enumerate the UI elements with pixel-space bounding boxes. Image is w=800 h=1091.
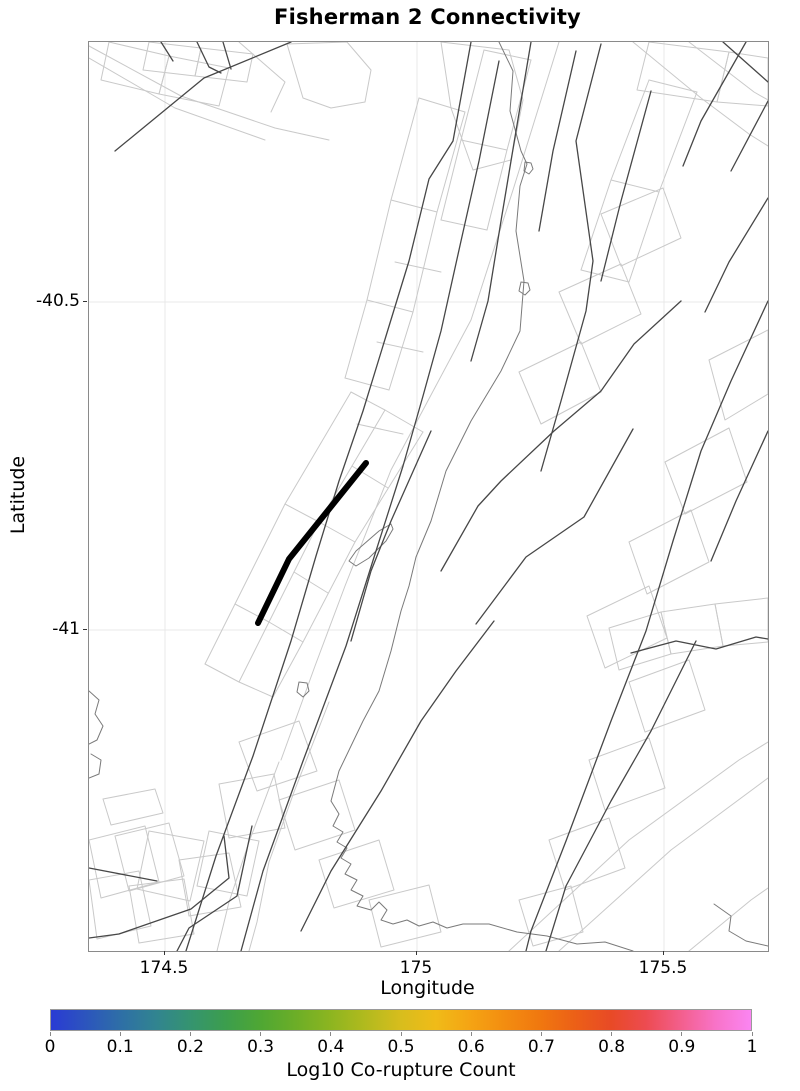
section-outline [629, 660, 705, 732]
x-tick-label: 174.5 [119, 958, 209, 978]
coastline [89, 691, 103, 744]
section-outline [587, 586, 667, 668]
fault-trace [471, 42, 531, 361]
colorbar-tick-label: 0.1 [90, 1037, 150, 1057]
x-tick-mark [164, 951, 165, 955]
section-outline [611, 180, 659, 192]
fault-trace [89, 868, 157, 881]
section-outline [89, 871, 151, 939]
colorbar-tick-label: 0.7 [511, 1037, 571, 1057]
plot-area [88, 41, 769, 952]
colorbar-tick-mark [471, 1032, 472, 1036]
section-outline [581, 270, 629, 282]
section-outline [285, 504, 319, 522]
x-tick-mark [416, 951, 417, 955]
colorbar-tick-mark [260, 1032, 261, 1036]
coastline [331, 42, 527, 801]
fault-trace [89, 836, 229, 938]
section-outline [179, 853, 241, 916]
section-outline [709, 330, 768, 420]
colorbar-tick-mark [541, 1032, 542, 1036]
section-outline [389, 112, 465, 390]
section-outline [319, 840, 394, 908]
fault-trace [301, 621, 494, 931]
section-outline [279, 780, 355, 850]
fault-trace [177, 826, 252, 951]
colorbar-tick-mark [752, 1032, 753, 1036]
colorbar-tick-mark [401, 1032, 402, 1036]
y-tick-mark [83, 629, 87, 630]
section-outline [345, 378, 389, 390]
colorbar-label: Log10 Co-rupture Count [50, 1059, 752, 1081]
coastline [519, 282, 530, 295]
y-tick-label: -41 [0, 619, 80, 639]
fault-trace [539, 51, 576, 231]
colorbar: 00.10.20.30.40.50.60.70.80.91 [50, 1009, 752, 1031]
fault-trace [705, 198, 768, 312]
section-outline [159, 56, 229, 106]
x-axis-label: Longitude [88, 977, 767, 999]
section-outline [581, 80, 649, 270]
coastline [714, 904, 768, 946]
section-outline [395, 262, 441, 272]
section-outline [89, 58, 265, 140]
fault-trace [115, 42, 291, 151]
fault-trace [223, 42, 231, 69]
colorbar-tick-label: 0.3 [231, 1037, 291, 1057]
fault-trace [541, 44, 601, 471]
section-outline [461, 140, 507, 150]
fault-trace [723, 42, 768, 82]
section-outline [101, 42, 169, 94]
colorbar-tick-mark [611, 1032, 612, 1036]
fault-trace [731, 101, 768, 171]
section-outline [357, 424, 403, 434]
fault-trace [241, 61, 499, 951]
section-outline [345, 98, 419, 378]
section-outline [239, 410, 385, 682]
colorbar-tick-mark [681, 1032, 682, 1036]
y-tick-mark [83, 301, 87, 302]
chart-title: Fisherman 2 Connectivity [88, 5, 767, 29]
colorbar-tick-mark [120, 1032, 121, 1036]
colorbar-tick-label: 0.8 [582, 1037, 642, 1057]
coastline [297, 682, 309, 697]
section-outline [239, 42, 285, 112]
colorbar-tick-label: 0 [20, 1037, 80, 1057]
section-outline [689, 888, 768, 951]
section-outline [205, 664, 239, 682]
y-axis-label: Latitude [7, 456, 29, 534]
colorbar-tick-label: 0.6 [441, 1037, 501, 1057]
colorbar-tick-mark [330, 1032, 331, 1036]
fault-trace [546, 641, 696, 951]
colorbar-tick-label: 0.4 [301, 1037, 361, 1057]
fault-map-canvas [89, 42, 768, 951]
section-outline [319, 522, 355, 542]
section-outline [633, 42, 768, 146]
colorbar-tick-label: 1 [722, 1037, 782, 1057]
fault-trace [476, 429, 633, 624]
section-outline [89, 826, 159, 898]
y-tick-label: -40.5 [0, 291, 80, 311]
coastline [89, 754, 101, 778]
colorbar-tick-label: 0.9 [652, 1037, 712, 1057]
section-outline [391, 200, 437, 212]
section-outline [281, 42, 559, 760]
colorbar-tick-mark [50, 1032, 51, 1036]
colorbar-tick-label: 0.2 [160, 1037, 220, 1057]
section-outline [269, 622, 303, 642]
section-outline [519, 342, 601, 424]
colorbar-tick-label: 0.5 [371, 1037, 431, 1057]
section-outline [661, 604, 723, 654]
section-outline [629, 510, 709, 594]
colorbar-tick-mark [190, 1032, 191, 1036]
section-outline [601, 188, 681, 266]
section-outline [239, 682, 273, 697]
section-outline [441, 50, 484, 220]
section-outline [649, 80, 697, 92]
section-outline [137, 831, 204, 901]
section-outline [509, 742, 768, 951]
highlighted-fault-fisherman-2 [258, 463, 366, 623]
section-outline [89, 46, 329, 140]
section-outline [103, 789, 163, 825]
x-tick-mark [663, 951, 664, 955]
section-outline [559, 264, 641, 344]
fault-trace [197, 42, 221, 73]
section-outline [195, 48, 253, 82]
fault-trace [186, 42, 471, 951]
section-outline [715, 598, 768, 646]
colorbar-gradient [50, 1009, 752, 1031]
x-tick-label: 175 [371, 958, 461, 978]
x-tick-label: 175.5 [618, 958, 708, 978]
section-outline [287, 42, 371, 108]
figure-fisherman-2-connectivity: Fisherman 2 Connectivity Latitude Longit… [0, 0, 800, 1091]
